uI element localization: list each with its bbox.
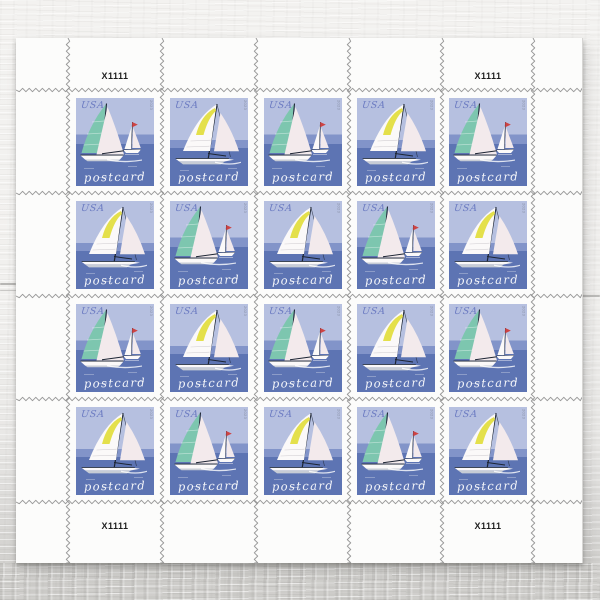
postcard-label: postcard — [76, 375, 154, 391]
postcard-label: postcard — [264, 375, 342, 391]
year-microprint: 2023 — [522, 203, 526, 213]
year-microprint: 2023 — [522, 409, 526, 419]
stamp-sheet: X1111 X1111 X1111 X1111 — [16, 38, 583, 563]
stamp-two-sailboats: USA postcard 2023 — [264, 98, 342, 186]
stamp-single-sailboat: USA postcard 2023 — [264, 407, 342, 495]
hull — [82, 261, 140, 264]
deck-line — [176, 364, 229, 365]
small-hull — [218, 458, 236, 462]
deck-line — [361, 463, 404, 464]
usa-label: USA — [174, 306, 199, 317]
plate-number-bottom-left: X1111 — [101, 521, 128, 531]
perforation-line-horizontal — [16, 500, 582, 503]
small-hull — [311, 355, 329, 359]
postcard-label: postcard — [264, 478, 342, 494]
postcard-label: postcard — [264, 272, 342, 288]
deck-line — [454, 467, 507, 468]
usa-label: USA — [453, 203, 478, 214]
small-hull — [124, 149, 142, 153]
perforation-line-vertical — [254, 38, 257, 563]
usa-label: USA — [453, 100, 478, 111]
usa-label: USA — [361, 203, 386, 214]
deck-line — [454, 261, 507, 262]
usa-label: USA — [361, 100, 386, 111]
small-wake — [219, 463, 233, 464]
hull — [175, 258, 218, 262]
postcard-label: postcard — [357, 169, 435, 185]
stamp-two-sailboats: USA postcard 2023 — [76, 98, 154, 186]
hull — [361, 464, 404, 468]
small-wake — [313, 360, 327, 361]
perforation-line-horizontal — [16, 191, 582, 194]
year-microprint: 2023 — [430, 100, 434, 110]
stamp-single-sailboat: USA postcard 2023 — [449, 201, 527, 289]
usa-label: USA — [453, 409, 478, 420]
deck-line — [175, 463, 218, 464]
deck-line — [82, 467, 135, 468]
hull — [362, 158, 420, 161]
small-wake — [219, 257, 233, 258]
deck-line — [269, 467, 322, 468]
plate-number-bottom-right: X1111 — [474, 521, 501, 531]
postcard-label: postcard — [449, 169, 527, 185]
postcard-label: postcard — [76, 272, 154, 288]
usa-label: USA — [80, 306, 105, 317]
usa-label: USA — [268, 203, 293, 214]
deck-line — [453, 154, 496, 155]
small-hull — [496, 355, 514, 359]
hull — [454, 261, 512, 264]
hull — [175, 464, 218, 468]
small-wake — [125, 154, 139, 155]
year-microprint: 2023 — [522, 306, 526, 316]
usa-label: USA — [268, 100, 293, 111]
stamp-single-sailboat: USA postcard 2023 — [170, 304, 248, 392]
plate-number-top-right: X1111 — [474, 71, 501, 81]
usa-label: USA — [174, 100, 199, 111]
deck-line — [362, 364, 415, 365]
year-microprint: 2023 — [337, 203, 341, 213]
year-microprint: 2023 — [149, 306, 153, 316]
postcard-label: postcard — [449, 375, 527, 391]
wood-grain-bottom — [0, 563, 600, 600]
stamp-two-sailboats: USA postcard 2023 — [170, 407, 248, 495]
hull — [81, 155, 124, 159]
perforation-line-vertical — [440, 38, 443, 563]
deck-line — [81, 360, 124, 361]
stamp-single-sailboat: USA postcard 2023 — [449, 407, 527, 495]
hull — [453, 361, 496, 365]
hull — [176, 364, 234, 367]
stamp-two-sailboats: USA postcard 2023 — [76, 304, 154, 392]
small-wake — [406, 257, 420, 258]
stamp-two-sailboats: USA postcard 2023 — [264, 304, 342, 392]
year-microprint: 2023 — [243, 203, 247, 213]
wood-plank-gap-left-2 — [0, 290, 16, 291]
usa-label: USA — [80, 203, 105, 214]
postcard-label: postcard — [76, 169, 154, 185]
postcard-label: postcard — [449, 478, 527, 494]
usa-label: USA — [361, 306, 386, 317]
year-microprint: 2023 — [522, 100, 526, 110]
perforation-line-vertical — [531, 38, 534, 563]
stamp-single-sailboat: USA postcard 2023 — [76, 201, 154, 289]
hull — [268, 155, 311, 159]
year-microprint: 2023 — [430, 409, 434, 419]
deck-line — [362, 158, 415, 159]
hull — [82, 467, 140, 470]
deck-line — [176, 158, 229, 159]
small-hull — [218, 252, 236, 256]
deck-line — [268, 154, 311, 155]
small-wake — [498, 360, 512, 361]
small-hull — [124, 355, 142, 359]
small-wake — [406, 463, 420, 464]
perforation-line-horizontal — [16, 397, 582, 400]
usa-label: USA — [268, 306, 293, 317]
hull — [269, 467, 327, 470]
stamp-single-sailboat: USA postcard 2023 — [357, 304, 435, 392]
year-microprint: 2023 — [149, 203, 153, 213]
small-wake — [313, 154, 327, 155]
year-microprint: 2023 — [243, 100, 247, 110]
perforation-line-vertical — [66, 38, 69, 563]
small-hull — [404, 252, 422, 256]
year-microprint: 2023 — [149, 100, 153, 110]
postcard-label: postcard — [357, 478, 435, 494]
usa-label: USA — [80, 409, 105, 420]
usa-label: USA — [174, 203, 199, 214]
postcard-label: postcard — [170, 478, 248, 494]
small-wake — [498, 154, 512, 155]
year-microprint: 2023 — [337, 100, 341, 110]
hull — [268, 361, 311, 365]
hull — [362, 364, 420, 367]
small-hull — [311, 149, 329, 153]
deck-line — [81, 154, 124, 155]
year-microprint: 2023 — [149, 409, 153, 419]
deck-line — [269, 261, 322, 262]
usa-label: USA — [268, 409, 293, 420]
perforation-line-vertical — [160, 38, 163, 563]
postcard-label: postcard — [449, 272, 527, 288]
usa-label: USA — [361, 409, 386, 420]
stamp-two-sailboats: USA postcard 2023 — [170, 201, 248, 289]
wood-plank-gap-left — [0, 283, 16, 285]
scene: { "sheet": { "plate_number": "X1111", "p… — [0, 0, 600, 600]
hull — [361, 258, 404, 262]
perforation-line-horizontal — [16, 88, 582, 91]
plate-number-top-left: X1111 — [101, 71, 128, 81]
usa-label: USA — [453, 306, 478, 317]
stamp-two-sailboats: USA postcard 2023 — [357, 407, 435, 495]
postcard-label: postcard — [170, 169, 248, 185]
usa-label: USA — [80, 100, 105, 111]
stamp-single-sailboat: USA postcard 2023 — [76, 407, 154, 495]
postcard-label: postcard — [76, 478, 154, 494]
stamp-two-sailboats: USA postcard 2023 — [449, 98, 527, 186]
year-microprint: 2023 — [243, 306, 247, 316]
small-hull — [404, 458, 422, 462]
postcard-label: postcard — [357, 375, 435, 391]
stamp-single-sailboat: USA postcard 2023 — [264, 201, 342, 289]
year-microprint: 2023 — [430, 306, 434, 316]
wood-plank-gap-right — [582, 295, 600, 297]
stamp-single-sailboat: USA postcard 2023 — [357, 98, 435, 186]
deck-line — [175, 257, 218, 258]
hull — [453, 155, 496, 159]
usa-label: USA — [174, 409, 199, 420]
hull — [269, 261, 327, 264]
stamp-two-sailboats: USA postcard 2023 — [357, 201, 435, 289]
deck-line — [453, 360, 496, 361]
perforation-line-horizontal — [16, 294, 582, 297]
small-wake — [125, 360, 139, 361]
postcard-label: postcard — [357, 272, 435, 288]
year-microprint: 2023 — [243, 409, 247, 419]
hull — [81, 361, 124, 365]
postcard-label: postcard — [170, 272, 248, 288]
small-hull — [496, 149, 514, 153]
postcard-label: postcard — [264, 169, 342, 185]
stamp-two-sailboats: USA postcard 2023 — [449, 304, 527, 392]
stamp-single-sailboat: USA postcard 2023 — [170, 98, 248, 186]
year-microprint: 2023 — [430, 203, 434, 213]
postcard-label: postcard — [170, 375, 248, 391]
year-microprint: 2023 — [337, 409, 341, 419]
deck-line — [361, 257, 404, 258]
year-microprint: 2023 — [337, 306, 341, 316]
deck-line — [82, 261, 135, 262]
deck-line — [268, 360, 311, 361]
hull — [176, 158, 234, 161]
perforation-line-vertical — [347, 38, 350, 563]
hull — [454, 467, 512, 470]
